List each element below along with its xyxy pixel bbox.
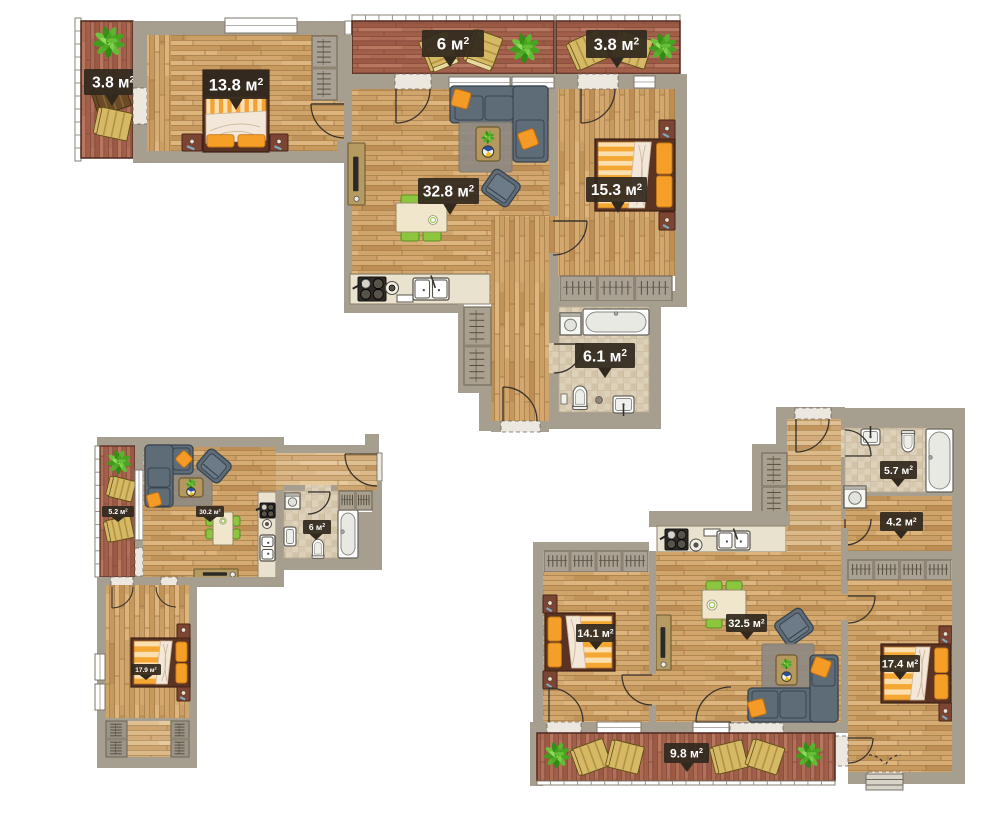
svg-text:6.1 м2: 6.1 м2 <box>583 348 628 365</box>
svg-text:4.2 м2: 4.2 м2 <box>886 517 917 529</box>
svg-text:15.3 м2: 15.3 м2 <box>591 182 642 199</box>
svg-text:32.5 м2: 32.5 м2 <box>728 618 765 630</box>
svg-text:5.7 м2: 5.7 м2 <box>884 465 913 477</box>
svg-text:17.9 м2: 17.9 м2 <box>135 666 157 674</box>
svg-text:3.8 м2: 3.8 м2 <box>594 36 640 54</box>
svg-text:14.1 м2: 14.1 м2 <box>577 628 614 640</box>
svg-text:3.8 м2: 3.8 м2 <box>92 74 135 91</box>
svg-text:30.2 м2: 30.2 м2 <box>199 508 221 516</box>
svg-text:17.4 м2: 17.4 м2 <box>882 659 919 671</box>
svg-text:9.8 м2: 9.8 м2 <box>670 746 703 760</box>
svg-text:32.8 м2: 32.8 м2 <box>423 183 474 200</box>
svg-text:13.8 м2: 13.8 м2 <box>209 76 264 94</box>
